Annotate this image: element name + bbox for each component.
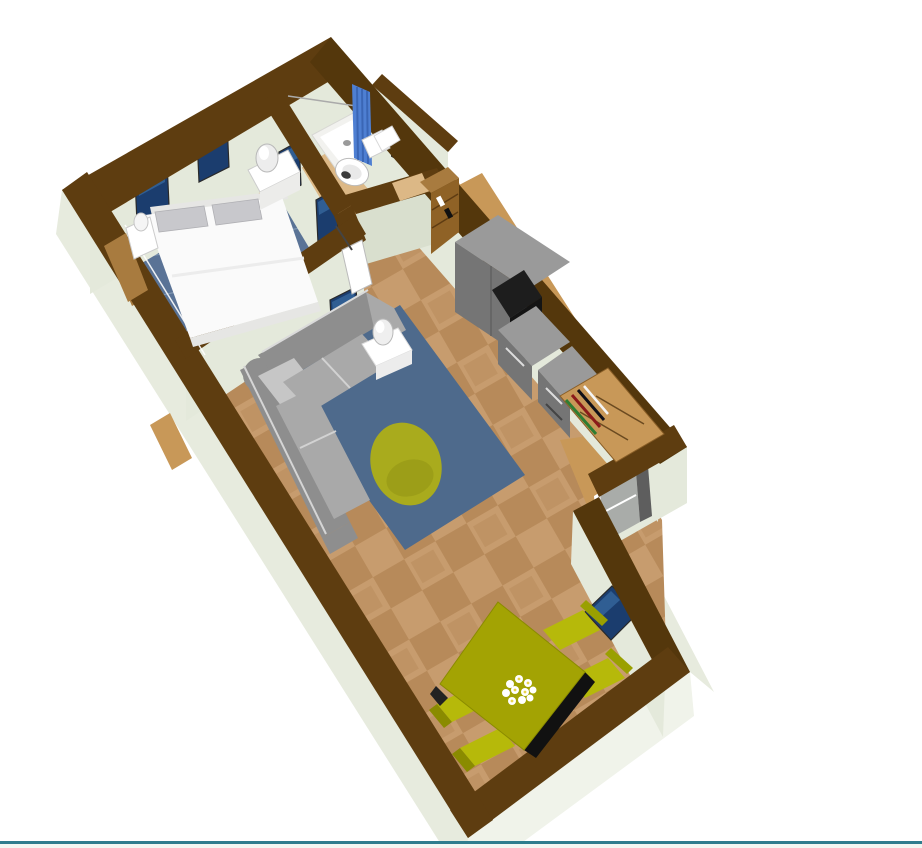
statusbar-strip: [0, 844, 922, 848]
viewport-divider-line[interactable]: [0, 841, 922, 844]
app-window: [0, 0, 922, 848]
floorplan-3d-viewport[interactable]: [0, 0, 922, 848]
